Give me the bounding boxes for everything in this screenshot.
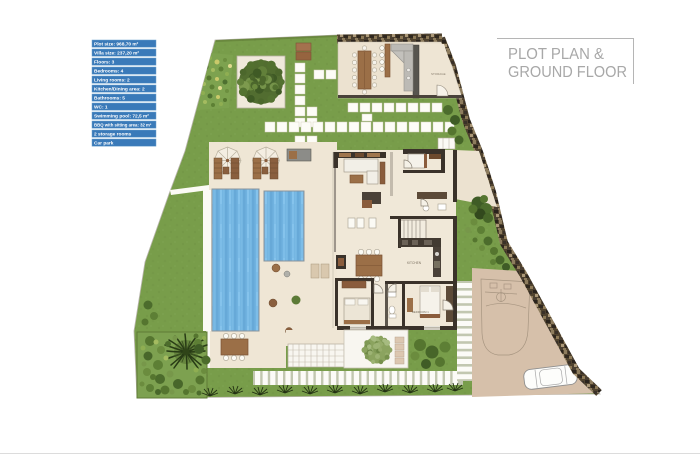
svg-text:Car park: Car park [94,140,114,146]
svg-text:BBQ with sitting area: 32 m²: BBQ with sitting area: 32 m² [94,122,152,127]
svg-text:Bathrooms: 5: Bathrooms: 5 [94,95,125,101]
svg-text:STORAGE: STORAGE [431,72,446,76]
svg-text:Plot size: 968,70 m²: Plot size: 968,70 m² [94,41,139,47]
svg-text:WC: 1: WC: 1 [94,104,108,110]
svg-text:Bedrooms: 4: Bedrooms: 4 [94,68,124,74]
svg-text:Swimming pool: 72,5 m²: Swimming pool: 72,5 m² [94,113,149,119]
svg-text:BEDROOM 1: BEDROOM 1 [412,310,429,314]
svg-text:KITCHEN: KITCHEN [407,261,422,265]
svg-text:Floors: 3: Floors: 3 [94,59,115,65]
svg-text:PLOT PLAN &: PLOT PLAN & [508,46,605,63]
svg-text:Living rooms: 2: Living rooms: 2 [94,77,130,83]
svg-text:Villa size: 237,20 m²: Villa size: 237,20 m² [94,50,139,56]
svg-text:GROUND FLOOR: GROUND FLOOR [508,64,627,81]
svg-text:Kitchen/Dining area: 2: Kitchen/Dining area: 2 [94,86,145,92]
svg-text:2 storage rooms: 2 storage rooms [94,131,132,137]
